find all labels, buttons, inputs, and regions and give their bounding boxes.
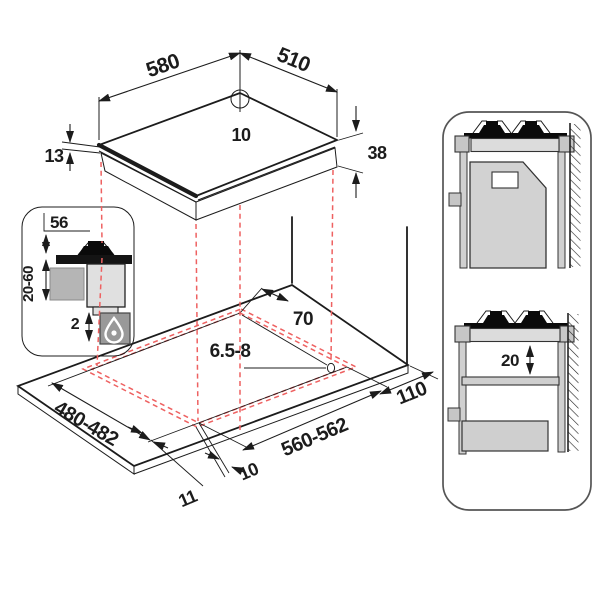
hob-top-bar (464, 323, 568, 329)
hob-body (471, 139, 559, 152)
hob-glass-thickness-line (198, 147, 335, 200)
dim-rear-clearance: 110 (393, 377, 430, 409)
dim-ext (339, 133, 363, 140)
dim-ext (62, 149, 100, 153)
dim-hob-depth: 510 (274, 43, 314, 77)
dim-hole-offset: 70 (293, 309, 313, 330)
hob-body-right (196, 148, 337, 220)
dim-overhang-side: 11 (175, 486, 200, 512)
side-tab (449, 193, 461, 206)
dim-ext (62, 142, 100, 147)
dim-hob-hole-diameter: 10 (231, 125, 251, 145)
hob-installation-diagram: 70 6.5-8 480-482 560-562 110 10 11 (0, 0, 600, 600)
cabinet-rail (558, 342, 565, 452)
worktop-band (56, 255, 132, 264)
side-view-shelf: 20 (448, 311, 579, 454)
wall-hatching (571, 124, 581, 267)
diagram-canvas: 70 6.5-8 480-482 560-562 110 10 11 (0, 0, 600, 600)
dim-leader (151, 440, 203, 486)
burner-section-inset: 56 20-60 2 (20, 207, 134, 356)
cabinet-rail (460, 152, 467, 268)
wall-hatching (569, 314, 579, 451)
mounting-bracket (455, 136, 469, 152)
cabinet-block (50, 268, 84, 300)
dim-hob-body-height: 38 (367, 143, 387, 163)
flame-icon-core (111, 330, 116, 335)
drawer (462, 421, 548, 451)
shelf (462, 377, 559, 385)
oven-vent (492, 172, 518, 188)
fixing-hole (327, 363, 334, 372)
hob-body (470, 329, 560, 342)
dim-hob-edge-thickness: 13 (44, 146, 64, 166)
dim-burner-height: 56 (50, 213, 68, 232)
installation-side-views: 20 (443, 112, 591, 510)
hob-front-left-edge (99, 145, 196, 196)
hole-reference-line (242, 315, 327, 365)
hob-isometric-view: 10 580 510 13 38 (44, 43, 387, 220)
hob-top-bar (464, 133, 567, 139)
dim-hob-width: 580 (143, 50, 182, 83)
dim-clearance-below: 2 (71, 316, 80, 333)
dim-ext (240, 288, 262, 313)
dim-shelf-clearance: 20 (501, 351, 519, 370)
dim-ext (338, 166, 363, 173)
dim-overhang-front: 10 (236, 458, 262, 484)
side-tab (448, 408, 460, 421)
dim-overhang-arrow (128, 427, 142, 433)
dim-cutout-width: 560-562 (278, 414, 351, 462)
projection-lines (97, 162, 333, 431)
dim-hole-diameter: 6.5-8 (210, 341, 251, 362)
dim-ext (410, 366, 438, 379)
burner-cap (78, 246, 114, 255)
dim-ext (347, 367, 387, 387)
cabinet-rail (558, 152, 565, 268)
mounting-bracket (455, 326, 470, 342)
dim-worktop-thickness: 20-60 (20, 266, 37, 302)
burner-housing (87, 264, 125, 307)
